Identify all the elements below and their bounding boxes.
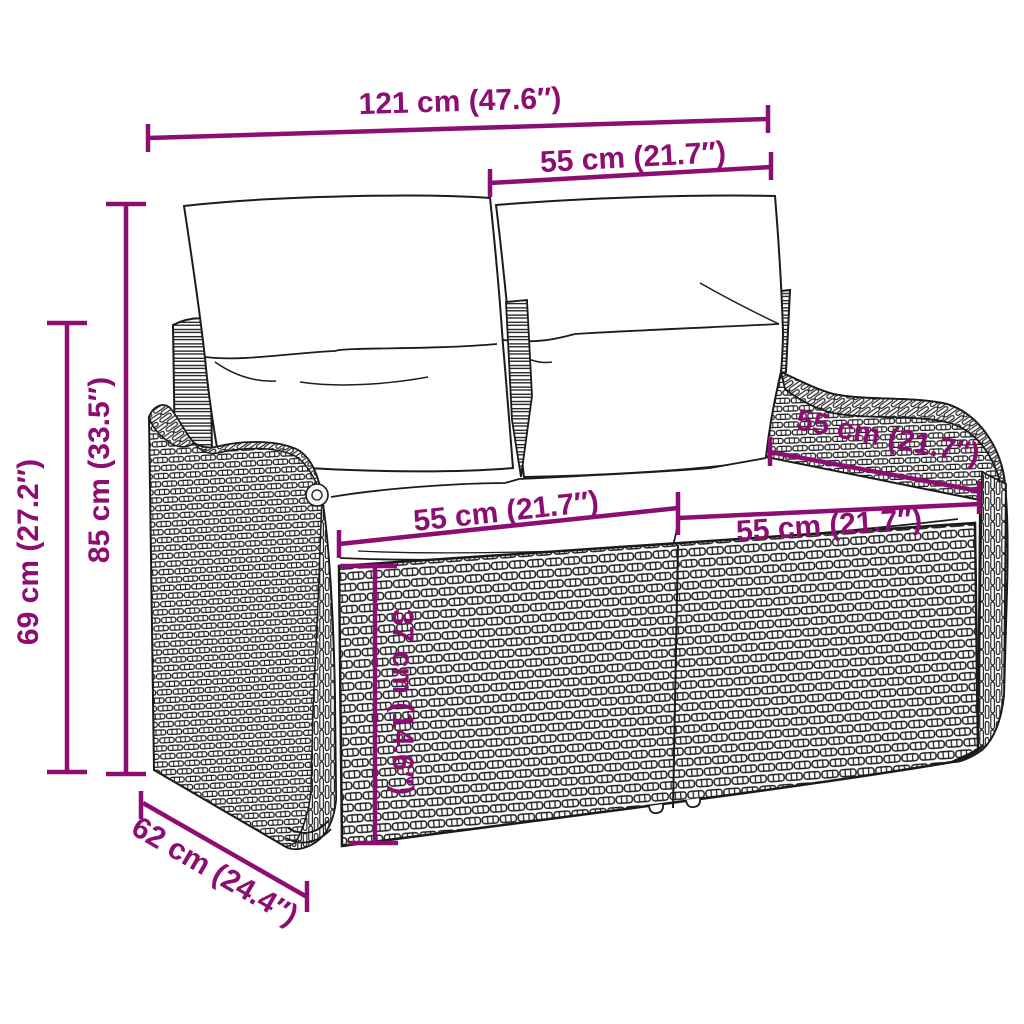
svg-text:121 cm (47.6″): 121 cm (47.6″) bbox=[358, 82, 562, 121]
svg-text:85 cm (33.5″): 85 cm (33.5″) bbox=[83, 377, 116, 563]
svg-text:37 cm (14.6″): 37 cm (14.6″) bbox=[386, 609, 419, 795]
svg-text:69 cm (27.2″): 69 cm (27.2″) bbox=[12, 459, 45, 645]
